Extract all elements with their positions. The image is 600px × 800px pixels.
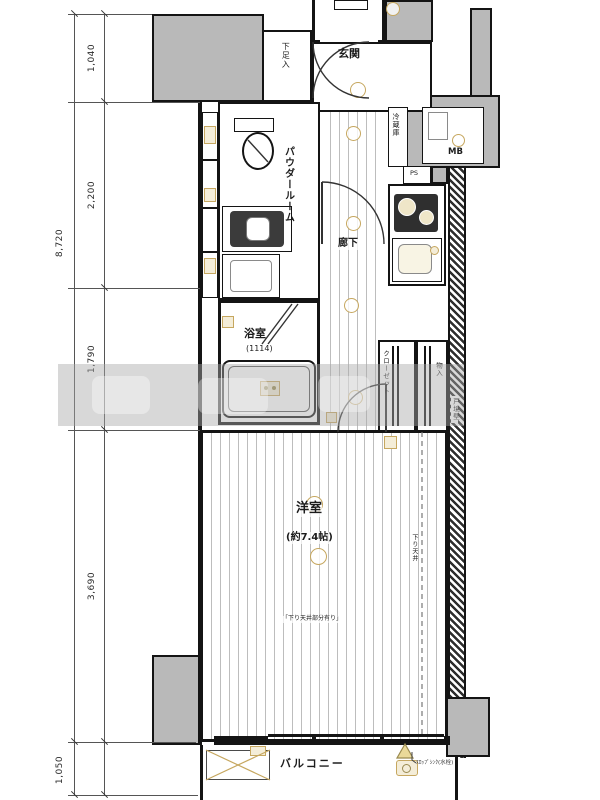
western-switch-icon [384,436,397,449]
fridge-label: 冷蔵庫 [392,113,400,137]
boundary-wall-hatch [448,168,466,758]
bottom-wall-segment [444,736,450,745]
bottom-wall-segment [214,736,268,745]
powder-cabinet [202,208,218,252]
dimension-extension [68,742,196,743]
storage [416,340,448,432]
corridor-light-icon [344,298,359,313]
wall-block-ps-side [431,166,448,184]
corridor-light-icon [346,126,361,141]
balcony-note: ｽﾛｯﾌﾟｼﾝｸ(水栓) [416,760,453,766]
wall-block-bottom-right [446,697,490,757]
dimension-extension [68,14,152,15]
washer-drum [230,260,272,292]
toilet-tank-icon [234,118,274,132]
porch-light-icon [386,2,400,16]
down-ceiling-note: 「下り天井部分有り」 [282,616,342,623]
mb-light-icon [452,134,465,147]
dimension-label-seg4: 3,690 [87,566,97,606]
western-size-label: (約7.4帖) [286,532,333,544]
storage-shelf [424,346,426,426]
faucet-icon [430,246,439,255]
storage-label: 物入 [434,362,441,377]
corridor-switch-icon [326,412,337,423]
unit-wall-left [198,100,202,745]
dimension-label-seg1: 1,040 [87,38,97,78]
window-mullion [380,734,384,745]
powder-cabinet-fixture [204,258,216,274]
genkan-label: 玄関 [338,48,360,61]
ps-label: PS [410,170,418,177]
window-mullion [312,734,316,745]
room-genkan [312,42,432,112]
powder-cabinet-fixture [204,188,216,202]
dimension-label-seg3: 1,790 [87,339,97,379]
room-corridor [322,112,380,432]
mb-equipment [428,112,448,140]
western-light-icon [310,548,327,565]
dimension-extension [68,288,200,289]
closet-rail [397,346,399,426]
toilet-bowl-icon [242,132,274,170]
wall-block-bottom-left [152,655,200,745]
bath-controller-icon [260,381,280,396]
corridor-label: 廊下 [338,238,358,250]
slop-sink-bowl [402,764,411,773]
boundary-wall-label: 戸境壁 [451,396,458,423]
dimension-label-total: 8,720 [55,221,65,265]
dimension-extension [68,430,200,431]
bath-label: 浴室 [244,328,266,341]
powder-cabinet-fixture [204,126,216,144]
watermark-glyph [92,376,150,414]
genkan-light-icon [350,82,366,98]
dimension-label-balcony: 1,050 [55,750,65,790]
stove-burner [398,198,416,216]
western-room-label: 洋室 [296,502,322,517]
wall-block-top-right [470,8,492,98]
wall-block-top-left [152,14,264,102]
window-sash [268,742,444,745]
balcony-fixture [250,746,266,756]
porch-doorframe [334,0,368,10]
room-western [200,430,448,742]
balcony-label: バルコニー [280,758,345,771]
mb-label: MB [448,148,463,158]
corridor-light-icon [346,216,361,231]
stove-burner [419,210,434,225]
window-sash [268,734,444,737]
dimension-line-chain [104,14,105,795]
dimension-extension [68,102,200,103]
floorplan-canvas: 玄関 下足入 MB PS 冷蔵庫 廊下 パウダールーム 浴室 (1114) [0,0,600,800]
closet-rail [392,346,394,426]
dimension-label-seg2: 2,200 [87,175,97,215]
shower-icon [222,316,234,328]
down-ceiling-label: 下り天井 [410,534,417,562]
storage-shelf [429,346,431,426]
closet-label: クローゼット [381,350,388,395]
corridor-light-icon [348,390,363,405]
vanity-bowl [246,217,270,241]
bath-size-label: (1114) [246,344,273,353]
powder-room-label: パウダールーム [282,146,294,223]
genkan-wall-right [378,40,432,44]
dimension-extension [68,795,198,796]
shoe-closet-label: 下足入 [281,42,290,69]
sink-bowl [398,244,432,274]
dimension-line-total [74,14,75,795]
